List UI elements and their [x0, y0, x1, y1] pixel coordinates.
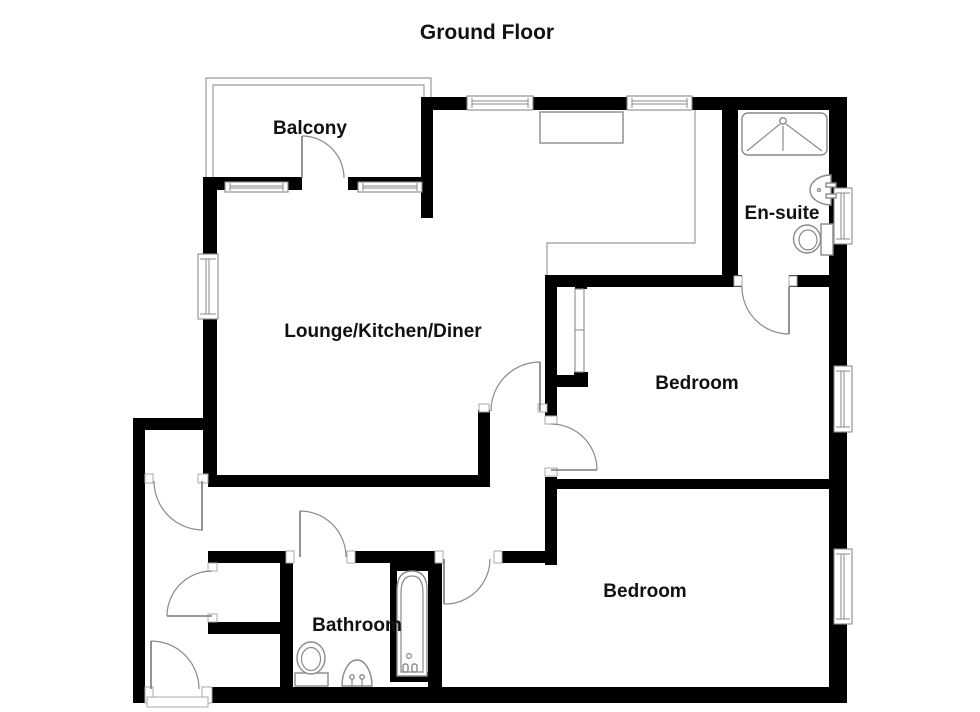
window-top-2: [627, 96, 692, 110]
fixtures: [295, 113, 836, 686]
bathroom-basin-icon: [342, 660, 372, 686]
window-top-1: [467, 96, 533, 110]
window-bedroom2: [834, 549, 852, 624]
window-balcony-right: [358, 182, 422, 192]
door-entrance: [145, 641, 212, 707]
door-bedroom2: [435, 551, 502, 604]
window-ensuite: [834, 188, 852, 244]
room-label-bedroom2: Bedroom: [603, 581, 686, 602]
shower-icon: [742, 113, 827, 155]
door-ensuite: [734, 276, 797, 334]
floor-plan-page: Ground Floor Balcony Lounge/Kitchen/Dine…: [0, 0, 980, 712]
door-cupboard-upper: [145, 474, 208, 530]
room-label-bedroom1: Bedroom: [655, 373, 738, 394]
room-label-lounge: Lounge/Kitchen/Diner: [284, 321, 482, 342]
room-label-bathroom: Bathroom: [312, 615, 402, 636]
window-balcony-left: [225, 182, 288, 192]
interior-window: [575, 289, 584, 372]
room-label-balcony: Balcony: [273, 118, 347, 139]
door-cupboard-lower: [167, 563, 217, 622]
room-label-ensuite: En-suite: [745, 203, 820, 224]
door-bedroom1: [545, 416, 597, 476]
window-bedroom1: [834, 366, 852, 432]
door-lounge: [479, 362, 547, 412]
page-title: Ground Floor: [420, 21, 554, 44]
door-bathroom: [286, 511, 355, 563]
entrance-threshold: [147, 697, 208, 707]
ensuite-toilet-icon: [794, 224, 834, 255]
kitchen-counter: [540, 112, 623, 143]
doors: [145, 136, 797, 707]
window-lounge-left: [198, 254, 218, 319]
bathroom-toilet-icon: [295, 642, 328, 686]
floor-plan-canvas: Ground Floor Balcony Lounge/Kitchen/Dine…: [0, 0, 980, 712]
windows: [198, 96, 852, 624]
door-balcony: [302, 136, 348, 190]
